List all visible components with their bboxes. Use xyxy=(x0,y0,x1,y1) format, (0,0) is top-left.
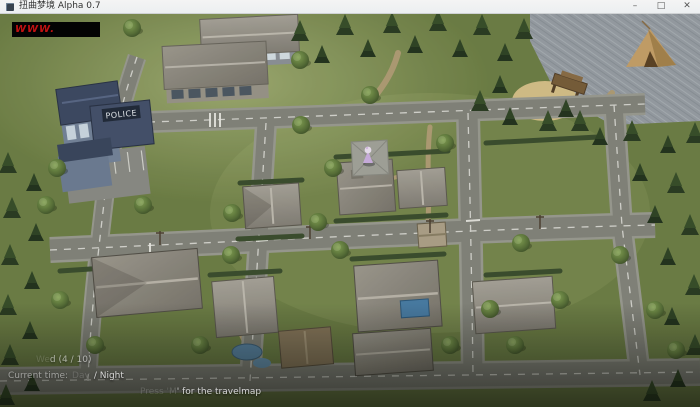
maximize-button[interactable]: □ xyxy=(648,0,674,13)
window-titlebar: 扭曲梦境 Alpha 0.7 – □ ✕ xyxy=(0,0,700,14)
hud-time-label: Current time: xyxy=(8,371,68,381)
hud-travelmap-hint: Press 'M' for the travelmap xyxy=(140,387,261,397)
hud-hint-text: ' for the travelmap xyxy=(177,387,261,397)
hud-hint-faded: Press 'M xyxy=(140,387,177,397)
town-map-scene: POLICE xyxy=(0,13,700,407)
watermark-text: WWW. xyxy=(12,22,55,37)
hud-day-counter: Wed (4 / 10) xyxy=(36,355,91,365)
hud-day-faded: We xyxy=(36,355,50,365)
hud-time: Current time:Day/ Night xyxy=(8,371,124,381)
scene-tint xyxy=(0,13,700,407)
hud-time-day: Day xyxy=(72,371,90,381)
hud-time-night: / Night xyxy=(94,371,124,381)
watermark-bar: WWW. xyxy=(12,22,100,37)
game-viewport: POLICE xyxy=(0,13,700,407)
game-window: 扭曲梦境 Alpha 0.7 – □ ✕ xyxy=(0,0,700,407)
close-button[interactable]: ✕ xyxy=(674,0,700,13)
hud-day-text: d (4 / 10) xyxy=(50,355,92,365)
window-controls: – □ ✕ xyxy=(622,0,700,13)
app-icon xyxy=(6,3,14,11)
window-title: 扭曲梦境 Alpha 0.7 xyxy=(19,0,101,13)
minimize-button[interactable]: – xyxy=(622,0,648,13)
